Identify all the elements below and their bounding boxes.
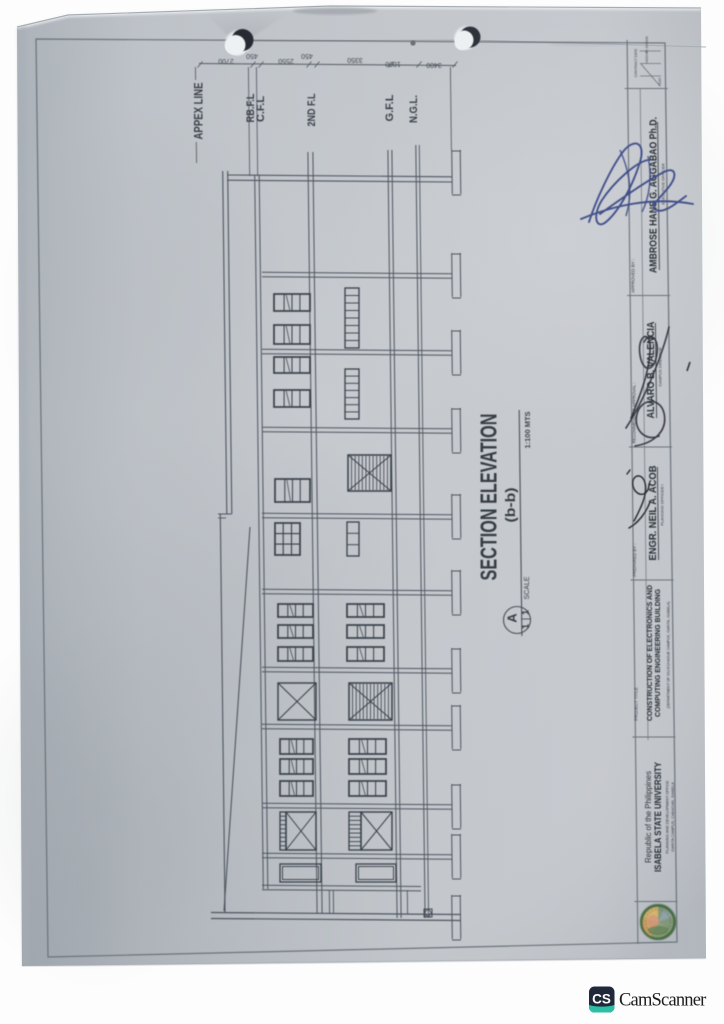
svg-text:C.F.L: C.F.L — [255, 96, 267, 122]
svg-text:1: 1 — [521, 610, 531, 615]
svg-text:2700: 2700 — [218, 57, 234, 64]
svg-text:COMPUTING ENGINEERING BUILDING: COMPUTING ENGINEERING BUILDING — [653, 589, 662, 717]
svg-text:EXECUTIVE OFFICER: EXECUTIVE OFFICER — [661, 163, 666, 204]
svg-text:PLANNING OFFICER I: PLANNING OFFICER I — [660, 484, 665, 525]
svg-text:2ND F.L: 2ND F.L — [306, 93, 318, 126]
svg-text:CS: CS — [592, 992, 611, 1007]
svg-text:1: 1 — [521, 624, 531, 629]
svg-text:PREPARED BY :: PREPARED BY : — [632, 543, 637, 576]
svg-text:APPROVED BY :: APPROVED BY : — [631, 259, 636, 293]
svg-text:SCALE: SCALE — [524, 576, 531, 599]
svg-text:3350: 3350 — [347, 56, 363, 63]
svg-text:YEAR: YEAR — [658, 77, 662, 86]
svg-text:3400: 3400 — [426, 61, 442, 68]
svg-text:N.G.L.: N.G.L. — [408, 95, 420, 123]
svg-text:Republic of the Philippines: Republic of the Philippines — [644, 771, 653, 863]
svg-text:450: 450 — [301, 52, 313, 59]
svg-text:HEIGHT: HEIGHT — [645, 51, 649, 63]
svg-text:GARITA CAMPUS, CABAGAN, ISABEL: GARITA CAMPUS, CABAGAN, ISABELA — [671, 782, 675, 852]
svg-text:(DEPARTMENT OF ISU ECHAGUE CAM: (DEPARTMENT OF ISU ECHAGUE CAMPUS, GARIT… — [667, 602, 671, 709]
svg-text:1:100 MTS: 1:100 MTS — [523, 411, 532, 448]
svg-text:APPEX LINE: APPEX LINE — [192, 83, 206, 140]
svg-text:ISABELA STATE UNIVERSITY: ISABELA STATE UNIVERSITY — [653, 762, 663, 872]
svg-text:G.F.L: G.F.L — [384, 94, 396, 121]
svg-text:(b-b): (b-b) — [503, 488, 518, 523]
svg-text:CamScanner: CamScanner — [619, 991, 706, 1011]
svg-text:PROJECT TITLE: PROJECT TITLE — [634, 687, 639, 721]
svg-text:1000: 1000 — [385, 60, 401, 67]
svg-text:2550: 2550 — [278, 57, 294, 64]
svg-text:A: A — [505, 613, 520, 623]
svg-text:CONTRACT DATE: CONTRACT DATE — [634, 48, 638, 77]
svg-text:SECTION ELEVATION: SECTION ELEVATION — [476, 414, 502, 581]
svg-text:PLANNING AND DEVELOPMENT OFFIC: PLANNING AND DEVELOPMENT OFFICE — [666, 780, 670, 853]
svg-text:450: 450 — [246, 52, 258, 59]
